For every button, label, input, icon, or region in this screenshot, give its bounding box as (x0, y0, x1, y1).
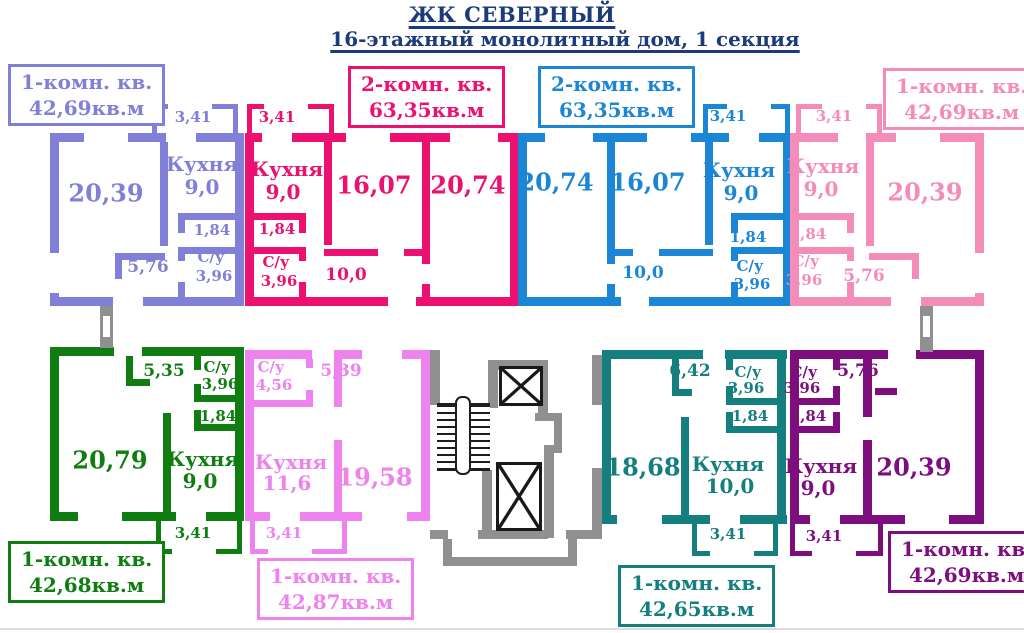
wall (233, 104, 238, 138)
wall (178, 213, 185, 233)
wall (50, 133, 244, 142)
room-area-bedroom: 16,07 (610, 168, 685, 197)
apartment-card-bottom-left: 1-комн. кв. 42,68кв.м (8, 541, 165, 603)
wall (777, 350, 786, 524)
wall (863, 440, 872, 515)
window (710, 551, 754, 556)
wall (731, 213, 738, 233)
window (103, 316, 110, 337)
wall (833, 386, 840, 398)
window (113, 297, 143, 306)
room-area-kitchen: 9,0 (801, 476, 836, 500)
stairwell-wall (488, 360, 498, 408)
wall (731, 282, 738, 303)
wall (731, 213, 783, 220)
wall (681, 417, 689, 515)
wall (194, 424, 244, 431)
stairwell-wall (430, 350, 440, 405)
wall (194, 395, 244, 402)
wall (115, 253, 165, 260)
room-area-balcony: 3,41 (806, 527, 843, 545)
window (812, 551, 856, 556)
room-area-bathroom: 3,96 (196, 267, 233, 285)
window (888, 350, 916, 359)
wall (299, 247, 306, 261)
wall (790, 398, 840, 405)
wall (975, 350, 984, 524)
wall (50, 347, 244, 356)
apartment-type: 1-комн. кв. (901, 536, 1024, 562)
window (268, 549, 312, 554)
window (545, 133, 593, 142)
window (647, 133, 691, 142)
wall (299, 282, 306, 303)
wall (847, 247, 854, 261)
room-area-corridor: 5,35 (143, 361, 184, 381)
apartment-area: 42,87кв.м (270, 589, 401, 615)
room-area-living: 20,39 (876, 453, 951, 482)
wall (847, 213, 854, 233)
room-area-living: 18,68 (605, 453, 680, 482)
apartment-area: 42,69кв.м (901, 562, 1024, 588)
room-area-living: 19,58 (337, 463, 412, 492)
wall (115, 253, 122, 279)
apartment-card-top-center-left: 2-комн. кв. 63,35кв.м (348, 66, 505, 128)
window (891, 297, 921, 306)
wall (799, 213, 854, 220)
wall (799, 247, 854, 254)
wall (726, 426, 778, 433)
wall (126, 379, 150, 386)
window (78, 512, 122, 521)
apartment-area: 42,69кв.м (21, 95, 152, 121)
elevator-x-icon (502, 369, 540, 403)
window (896, 133, 940, 142)
apartment-card-bottom-center-left: 1-комн. кв. 42,87кв.м (257, 558, 414, 620)
apartment-card-top-center-right: 2-комн. кв. 63,35кв.м (538, 66, 695, 128)
wall (518, 297, 792, 306)
wall (422, 284, 430, 306)
wall (194, 410, 201, 424)
wall (726, 356, 733, 370)
wall (790, 133, 984, 142)
room-label-bathroom: С/у (257, 358, 284, 376)
window (388, 297, 416, 306)
room-area-living: 20,74 (518, 168, 593, 197)
window (633, 249, 659, 256)
apartment-type: 1-комн. кв. (21, 69, 152, 95)
wall (875, 388, 897, 395)
room-area-corridor: 5,76 (127, 257, 168, 277)
floorplan-stage: ЖК СЕВЕРНЫЙ 16-этажный монолитный дом, 1… (0, 0, 1024, 633)
room-area-corridor: 10,0 (622, 263, 663, 283)
wall (422, 142, 430, 264)
wall (726, 412, 733, 426)
room-area-kitchen: 11,6 (263, 471, 312, 495)
apartment-type: 2-комн. кв. (551, 71, 682, 97)
window (975, 253, 984, 293)
apartment-area: 63,35кв.м (361, 97, 492, 123)
room-area-kitchen: 9,0 (185, 175, 220, 199)
wall (194, 356, 201, 370)
apartment-card-top-right: 1-комн. кв. 42,69кв.м (883, 68, 1024, 130)
room-area-living: 20,79 (72, 446, 147, 475)
apartment-type: 2-комн. кв. (361, 71, 492, 97)
room-area-kitchen: 9,0 (266, 180, 301, 204)
stairwell-wall (554, 413, 562, 453)
apartment-area: 42,68кв.м (21, 572, 152, 598)
stairwell-wall (592, 355, 602, 405)
wall (731, 247, 783, 254)
wall (50, 347, 59, 521)
apartment-type: 1-комн. кв. (896, 73, 1024, 99)
wall (178, 247, 235, 254)
room-area-bathroom: 4,56 (256, 376, 293, 394)
window (905, 515, 949, 524)
apartment-type: 1-комн. кв. (631, 570, 762, 596)
window (810, 515, 840, 524)
apartment-type: 1-комн. кв. (270, 563, 401, 589)
stairwell-wall (544, 445, 554, 538)
room-area-balcony: 3,41 (710, 107, 747, 125)
room-area-living: 20,39 (68, 179, 143, 208)
window (346, 133, 390, 142)
room-label-kitchen: Кухня (692, 452, 764, 476)
wall (705, 142, 713, 245)
room-area-balcony: 3,41 (816, 107, 853, 125)
room-area-bathroom: 3,96 (728, 379, 765, 397)
room-area-living: 20,39 (887, 178, 962, 207)
wall (247, 104, 252, 138)
wall (790, 350, 984, 359)
wall (607, 142, 615, 264)
stairs-handrail (455, 396, 471, 475)
stairwell-wall (592, 468, 602, 532)
room-area-hall: 1,84 (259, 220, 296, 238)
window (729, 133, 759, 142)
window (264, 104, 308, 109)
room-area-bathroom: 3,96 (734, 275, 771, 293)
room-label-kitchen: Кухня (255, 450, 327, 474)
stairwell-wall (443, 557, 577, 566)
wall (163, 413, 171, 512)
room-label-bathroom: С/у (734, 363, 761, 381)
room-area-corridor: 10,0 (325, 265, 366, 285)
wall (607, 249, 713, 256)
room-area-hall: 1,84 (732, 407, 769, 425)
wall (178, 247, 185, 261)
room-label-bathroom: С/у (262, 253, 289, 271)
wall (299, 213, 306, 233)
room-label-bathroom: С/у (736, 257, 763, 275)
wall (602, 350, 787, 359)
apartment-card-bottom-center-right: 1-комн. кв. 42,65кв.м (618, 565, 775, 627)
wall (245, 350, 430, 359)
room-label-kitchen: Кухня (251, 157, 323, 181)
room-area-kitchen: 10,0 (706, 474, 755, 498)
wall (50, 297, 244, 306)
window (703, 350, 725, 359)
apartment-area: 63,35кв.м (551, 97, 682, 123)
wall (421, 350, 430, 521)
wall (235, 133, 244, 306)
elevator-shaft (496, 462, 542, 531)
room-area-kitchen: 9,0 (183, 469, 218, 493)
room-area-hall: 1,84 (200, 407, 237, 425)
room-label-bathroom: С/у (203, 358, 230, 376)
window (923, 316, 930, 337)
room-area-bedroom: 16,07 (336, 171, 411, 200)
wall (833, 412, 840, 426)
window (114, 347, 142, 356)
stairwell-wall (566, 530, 602, 539)
room-label-kitchen: Кухня (167, 447, 239, 471)
wall (790, 350, 799, 524)
window (270, 512, 300, 521)
room-label-kitchen: Кухня (703, 158, 775, 182)
wall (790, 133, 799, 306)
window (50, 253, 59, 293)
wall (245, 350, 254, 521)
wall (245, 297, 519, 306)
wall (877, 104, 882, 138)
window (84, 133, 128, 142)
stairwell-wall (478, 530, 548, 539)
wall (790, 426, 840, 433)
wall (235, 347, 244, 521)
wall (160, 142, 168, 246)
wall (518, 133, 527, 306)
room-area-balcony: 3,41 (175, 524, 212, 542)
window (262, 133, 292, 142)
window (378, 249, 404, 256)
window (727, 104, 771, 109)
wall (194, 384, 201, 395)
stairwell-wall (482, 470, 492, 538)
wall (324, 249, 430, 256)
wall (833, 356, 840, 370)
wall (602, 350, 611, 524)
room-area-bathroom: 3,96 (202, 375, 239, 393)
stairwell-wall (568, 539, 577, 566)
apartment-card-top-left: 1-комн. кв. 42,69кв.м (8, 64, 165, 126)
wall (703, 104, 708, 138)
wall (607, 284, 615, 306)
wall (726, 386, 733, 398)
wall (672, 389, 692, 396)
wall (334, 440, 342, 516)
wall (245, 133, 254, 306)
window (168, 104, 212, 109)
room-area-balcony: 3,41 (710, 525, 747, 543)
window (838, 133, 866, 142)
window (362, 350, 402, 359)
wall (324, 142, 332, 245)
wall (178, 282, 185, 306)
wall (790, 297, 984, 306)
room-label-kitchen: Кухня (166, 152, 238, 176)
wall (178, 213, 235, 220)
wall (863, 350, 872, 417)
window (166, 133, 196, 142)
wall (847, 282, 854, 306)
window (710, 515, 740, 524)
wall (796, 104, 801, 138)
stairwell-wall (430, 530, 448, 539)
room-area-living: 20,74 (430, 171, 505, 200)
room-area-kitchen: 9,0 (724, 181, 759, 205)
room-area-hall: 1,84 (194, 221, 231, 239)
window (617, 515, 662, 524)
window (362, 512, 407, 521)
room-area-bathroom: 3,96 (261, 272, 298, 290)
window (621, 297, 649, 306)
wall (912, 253, 919, 279)
room-area-balcony: 3,41 (175, 108, 212, 126)
page-subtitle: 16-этажный монолитный дом, 1 секция (106, 27, 1024, 51)
apartment-area: 42,65кв.м (631, 596, 762, 622)
room-area-balcony: 3,41 (266, 524, 303, 542)
bottom-divider (0, 628, 1024, 630)
wall (726, 398, 778, 405)
window (450, 133, 498, 142)
room-area-kitchen: 9,0 (804, 177, 839, 201)
elevator-x-icon (499, 465, 539, 528)
window (176, 512, 206, 521)
wall (334, 359, 342, 407)
wall (329, 104, 334, 138)
wall (251, 400, 313, 407)
apartment-type: 1-комн. кв. (21, 546, 152, 572)
apartment-area: 42,69кв.м (896, 99, 1024, 125)
window (822, 104, 866, 109)
page-title: ЖК СЕВЕРНЫЙ (0, 2, 1024, 27)
elevator-shaft (499, 366, 543, 406)
room-area-balcony: 3,41 (259, 108, 296, 126)
room-area-corridor: 5,76 (837, 361, 878, 381)
window (312, 350, 334, 359)
wall (731, 247, 738, 261)
apartment-card-bottom-right: 1-комн. кв. 42,69кв.м (888, 531, 1024, 593)
window (172, 549, 216, 554)
wall (866, 142, 874, 246)
